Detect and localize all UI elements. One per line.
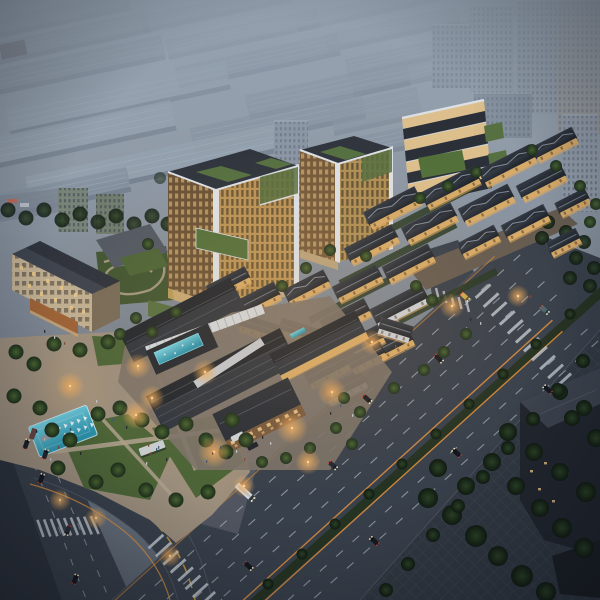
rendering-stage	[0, 0, 600, 600]
lighting-effects	[0, 0, 600, 600]
aerial-rendering-canvas	[0, 0, 600, 600]
vignette	[0, 0, 600, 600]
